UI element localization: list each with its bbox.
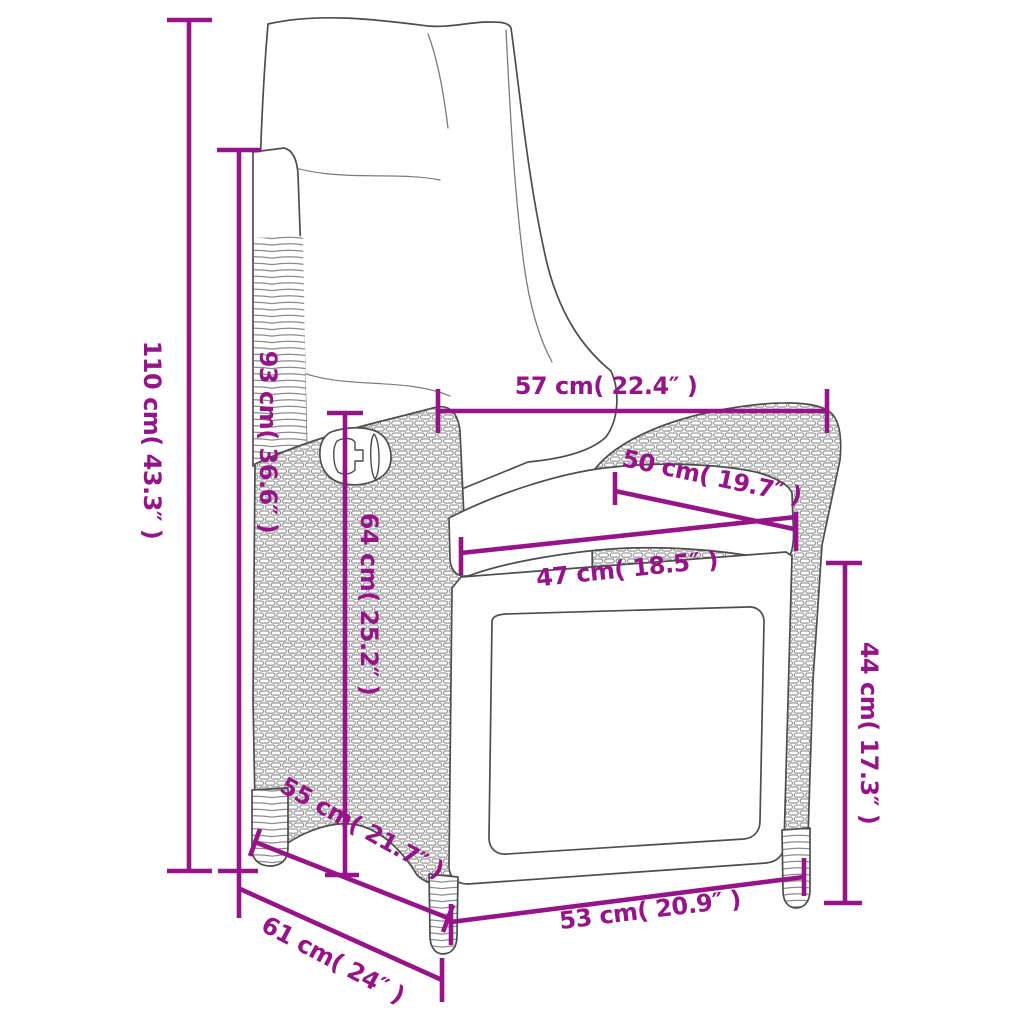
dimension-label-base-depth: 61 cm( 24″ ) <box>257 911 409 1010</box>
dimension-line-total-height <box>167 20 212 871</box>
dimension-label-total-height: 110 cm( 43.3″ ) <box>138 341 166 540</box>
product-dimension-diagram: 110 cm( 43.3″ ) 93 cm( 36.6″ ) 57 cm( 22… <box>0 0 1024 1024</box>
front-base-box <box>449 552 792 884</box>
dimension-label-backrest-height: 93 cm( 36.6″ ) <box>254 351 282 534</box>
dimension-label-side-panel-height: 64 cm( 25.2″ ) <box>355 513 383 696</box>
dimension-label-armrest-height: 44 cm( 17.3″ ) <box>855 642 883 825</box>
dimension-label-base-width: 53 cm( 20.9″ ) <box>558 885 743 935</box>
diagram-canvas: 110 cm( 43.3″ ) 93 cm( 36.6″ ) 57 cm( 22… <box>0 0 1024 1024</box>
dimension-label-width-top: 57 cm( 22.4″ ) <box>515 372 698 400</box>
